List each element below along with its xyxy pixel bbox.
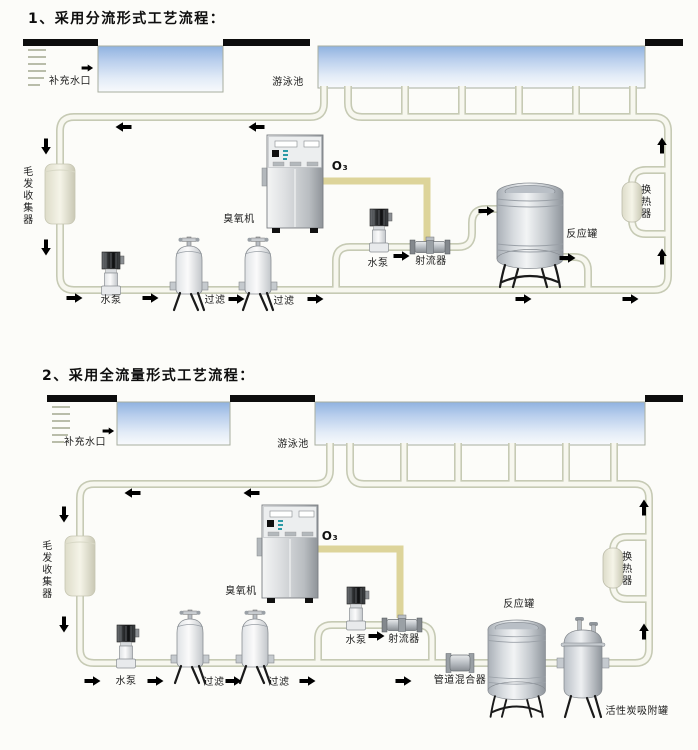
label-heat-exchanger-2: 换热器 [619,551,631,587]
diagram2-title: 2、采用全流量形式工艺流程： [42,365,255,385]
hair-collector-1 [45,164,75,224]
booster-pump-2 [347,587,370,630]
balance-tank-water [98,46,223,92]
deck-bar [230,395,315,402]
injector-2 [382,615,422,632]
balance-tank-water [117,402,230,445]
label-makeup-inlet-1: 补充水口 [49,76,91,88]
label-injector-1: 射流器 [415,256,447,268]
diagram1-title: 1、采用分流形式工艺流程： [28,8,225,28]
deck-bar [47,395,117,402]
label-ozone-gas-2: O₃ [322,530,338,544]
makeup-inlet-grate [28,50,46,85]
reaction-tank-2 [488,620,545,717]
swimming-pool-water [318,46,645,88]
filter-1b [239,237,277,310]
main-pump-1 [102,252,125,295]
label-filter-2b: 过滤 [269,677,290,689]
label-pool-1: 游泳池 [272,77,304,89]
label-main-pump-1: 水泵 [101,295,122,307]
label-filter-1a: 过滤 [205,295,226,307]
ozone-generator-2 [257,505,318,603]
filter-2a [171,610,209,683]
pipeline-mixer-2 [446,654,474,673]
label-pool-2: 游泳池 [277,439,309,451]
label-reaction-tank-1: 反应罐 [566,229,598,241]
label-reaction-tank-2: 反应罐 [503,599,535,611]
label-ozone-generator-2: 臭氧机 [225,586,257,598]
label-injector-2: 射流器 [388,634,420,646]
label-pipeline-mixer-2: 管道混合器 [434,675,487,687]
deck-bar [645,395,683,402]
filter-2b [236,610,274,683]
deck-bar [23,39,98,46]
label-booster-pump-1: 水泵 [368,258,389,270]
injector-1 [410,237,450,254]
label-heat-exchanger-1: 换热器 [638,184,650,220]
label-filter-2a: 过滤 [204,677,225,689]
label-carbon-tank-2: 活性炭吸附罐 [606,706,669,718]
label-main-pump-2: 水泵 [116,676,137,688]
filter-1a [170,237,208,310]
label-hair-collector-1: 毛发收集器 [20,166,32,226]
label-ozone-gas-1: O₃ [332,160,348,174]
label-filter-1b: 过滤 [274,296,295,308]
label-booster-pump-2: 水泵 [346,635,367,647]
label-makeup-inlet-2: 补充水口 [64,437,106,449]
label-hair-collector-2: 毛发收集器 [39,540,51,600]
main-pump-2 [117,625,140,668]
label-ozone-generator-1: 臭氧机 [223,214,255,226]
hair-collector-2 [65,536,95,596]
swimming-pool-water [315,402,645,445]
carbon-tank-2 [557,617,609,717]
booster-pump-1 [370,209,393,252]
ozone-generator-1 [262,135,323,233]
reaction-tank-1 [497,183,563,287]
deck-bar [223,39,310,46]
page: 1、采用分流形式工艺流程： 2、采用全流量形式工艺流程： 补充水口 游泳池 毛发… [0,0,698,750]
diagram2-pool [47,395,683,445]
deck-bar [645,39,683,46]
diagram1-pool [23,39,683,92]
